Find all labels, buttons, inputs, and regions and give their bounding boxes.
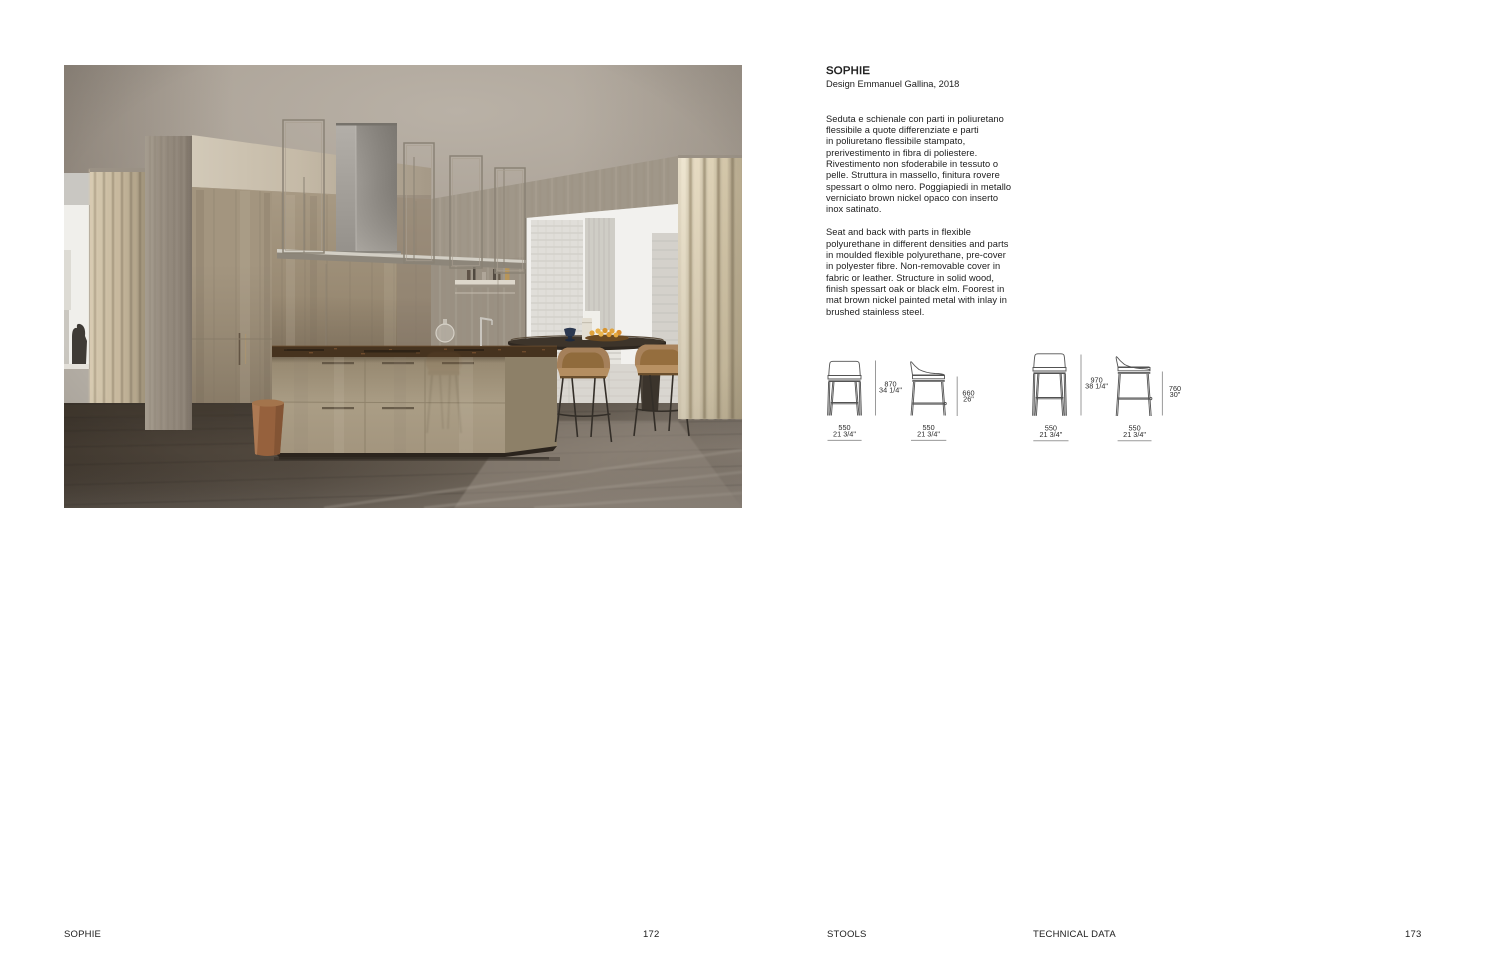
svg-text:21 3/4": 21 3/4" [1039,430,1062,439]
svg-text:38 1/4": 38 1/4" [1085,382,1108,391]
svg-text:34 1/4": 34 1/4" [879,386,902,395]
svg-text:30": 30" [1170,390,1181,399]
svg-text:21 3/4": 21 3/4" [1123,430,1146,439]
svg-text:26": 26" [963,395,974,404]
svg-text:21 3/4": 21 3/4" [833,429,856,438]
svg-text:21 3/4": 21 3/4" [917,429,940,438]
